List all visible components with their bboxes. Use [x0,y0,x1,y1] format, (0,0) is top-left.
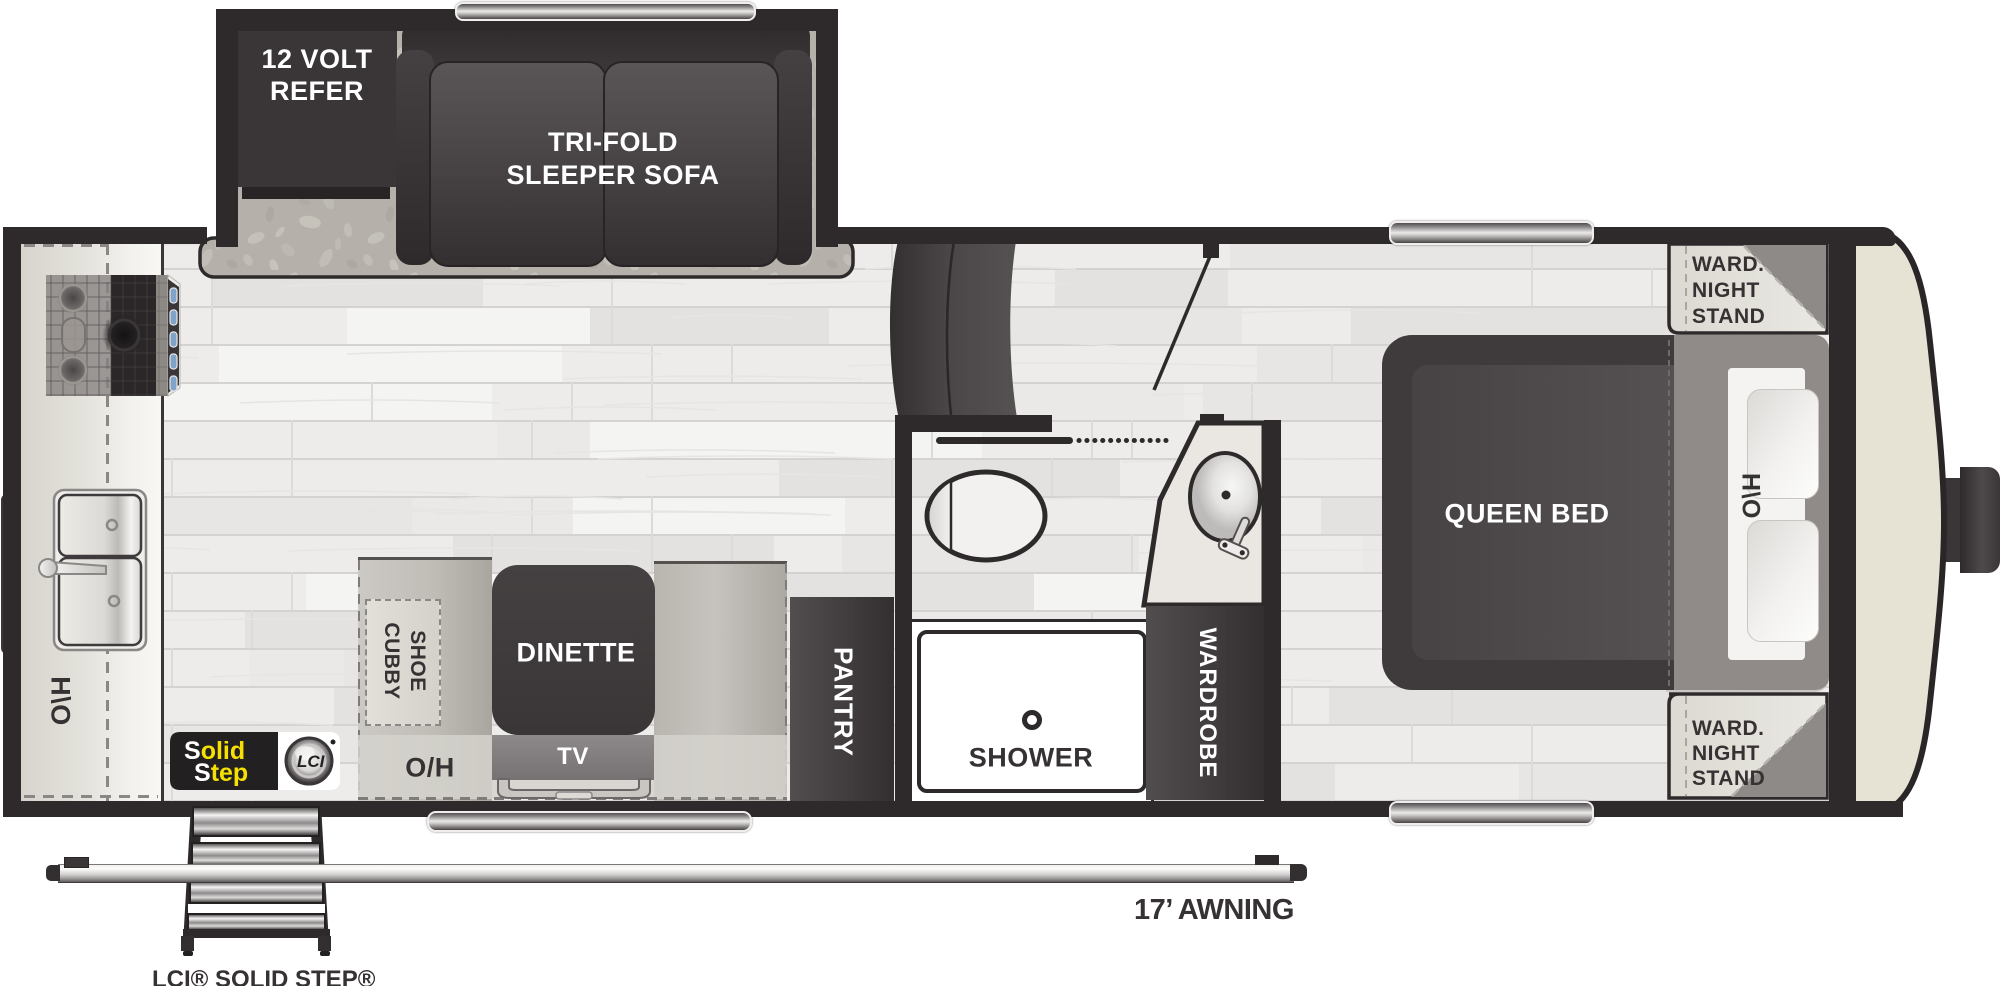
svg-text:LCI: LCI [297,752,326,771]
svg-text:Step: Step [194,759,248,787]
